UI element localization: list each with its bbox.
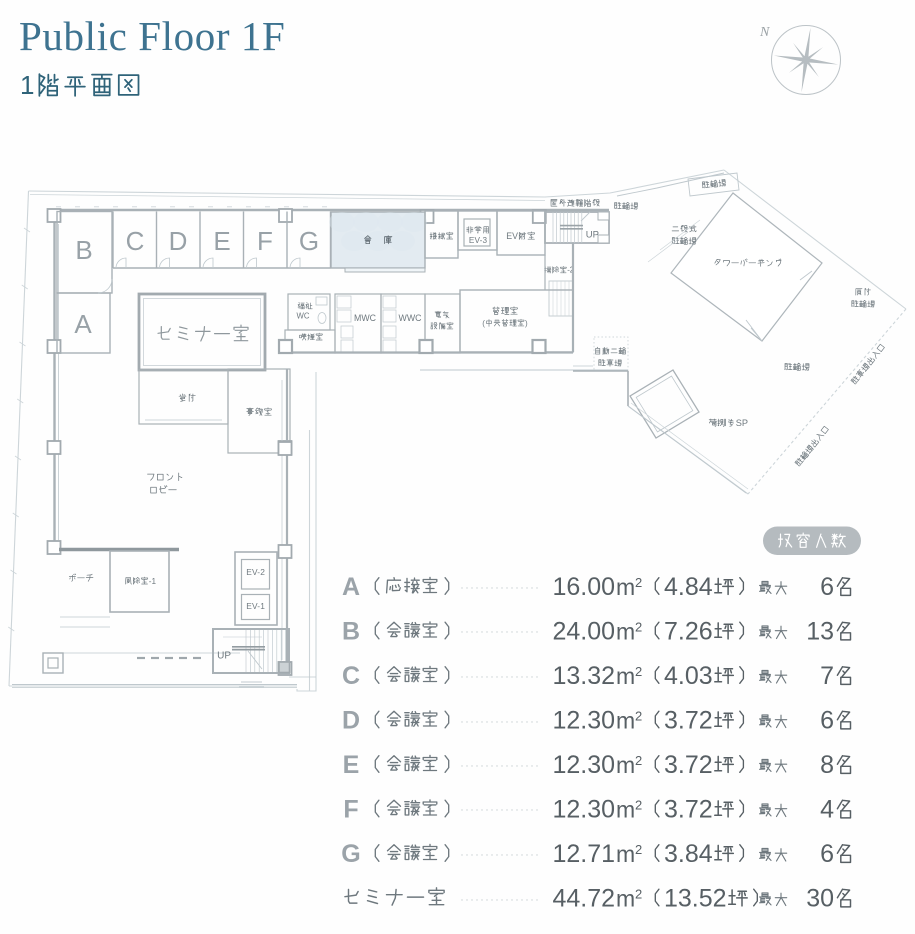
svg-text:G: G — [341, 840, 360, 868]
svg-text:N: N — [759, 25, 770, 40]
svg-text:4.84: 4.84 — [664, 573, 713, 601]
svg-text:2: 2 — [635, 664, 642, 679]
svg-text:3.72: 3.72 — [664, 707, 713, 735]
svg-text:SP: SP — [736, 418, 748, 428]
svg-text:16.00: 16.00 — [552, 573, 615, 601]
svg-text:m: m — [616, 841, 635, 867]
svg-text:E: E — [343, 751, 360, 779]
svg-text:2: 2 — [635, 798, 642, 813]
svg-text:F: F — [257, 226, 273, 256]
svg-text:6: 6 — [820, 707, 834, 735]
svg-text:m: m — [616, 886, 635, 912]
svg-text:MWC: MWC — [354, 313, 377, 323]
svg-text:WWC: WWC — [399, 313, 423, 323]
svg-text:12.30: 12.30 — [552, 796, 615, 824]
svg-text:F: F — [343, 796, 358, 824]
svg-text:EV-3: EV-3 — [469, 236, 488, 245]
svg-text:3.72: 3.72 — [664, 796, 713, 824]
svg-text:(: ( — [482, 319, 485, 328]
svg-text:G: G — [299, 226, 319, 256]
svg-text:D: D — [169, 226, 188, 256]
svg-text:6: 6 — [820, 573, 834, 601]
svg-text:24.00: 24.00 — [552, 618, 615, 646]
svg-text:E: E — [213, 226, 230, 256]
svg-text:12.30: 12.30 — [552, 707, 615, 735]
svg-text:EV-2: EV-2 — [246, 567, 265, 577]
svg-text:8: 8 — [820, 751, 834, 779]
svg-text:A: A — [342, 573, 360, 601]
svg-text:Public Floor 1F: Public Floor 1F — [19, 13, 285, 59]
svg-text:13.52: 13.52 — [664, 885, 727, 913]
svg-text:13: 13 — [806, 618, 834, 646]
svg-text:3.72: 3.72 — [664, 751, 713, 779]
svg-text:m: m — [616, 663, 635, 689]
svg-text:C: C — [342, 662, 360, 690]
svg-text:13.32: 13.32 — [552, 662, 615, 690]
svg-text:UP: UP — [586, 229, 599, 240]
svg-text:7: 7 — [820, 662, 834, 690]
svg-text:m: m — [616, 619, 635, 645]
svg-text:12.30: 12.30 — [552, 751, 615, 779]
svg-text:B: B — [75, 235, 92, 265]
svg-text:1: 1 — [20, 70, 34, 100]
svg-text:2: 2 — [635, 842, 642, 857]
svg-text:m: m — [616, 574, 635, 600]
svg-text:2: 2 — [635, 753, 642, 768]
svg-text:m: m — [616, 797, 635, 823]
svg-text:6: 6 — [820, 840, 834, 868]
svg-text:7.26: 7.26 — [664, 618, 713, 646]
svg-text:C: C — [126, 226, 145, 256]
svg-text:4: 4 — [820, 796, 834, 824]
svg-text:44.72: 44.72 — [552, 885, 615, 913]
svg-text:UP: UP — [217, 651, 231, 662]
svg-text:A: A — [74, 309, 92, 339]
svg-text:2: 2 — [635, 709, 642, 724]
svg-text:D: D — [342, 707, 360, 735]
svg-text:m: m — [616, 708, 635, 734]
svg-text:WC: WC — [297, 312, 310, 321]
svg-text:2: 2 — [635, 887, 642, 902]
svg-text:4.03: 4.03 — [664, 662, 713, 690]
svg-text:30: 30 — [806, 885, 834, 913]
svg-text:2: 2 — [635, 620, 642, 635]
svg-text:): ) — [525, 319, 528, 328]
svg-text:3.84: 3.84 — [664, 840, 713, 868]
svg-text:m: m — [616, 752, 635, 778]
svg-text:12.71: 12.71 — [552, 840, 615, 868]
svg-text:B: B — [342, 618, 360, 646]
svg-text:EV: EV — [506, 231, 518, 241]
svg-text:-1: -1 — [149, 577, 157, 586]
svg-text:EV-1: EV-1 — [246, 601, 265, 611]
svg-text:2: 2 — [635, 575, 642, 590]
